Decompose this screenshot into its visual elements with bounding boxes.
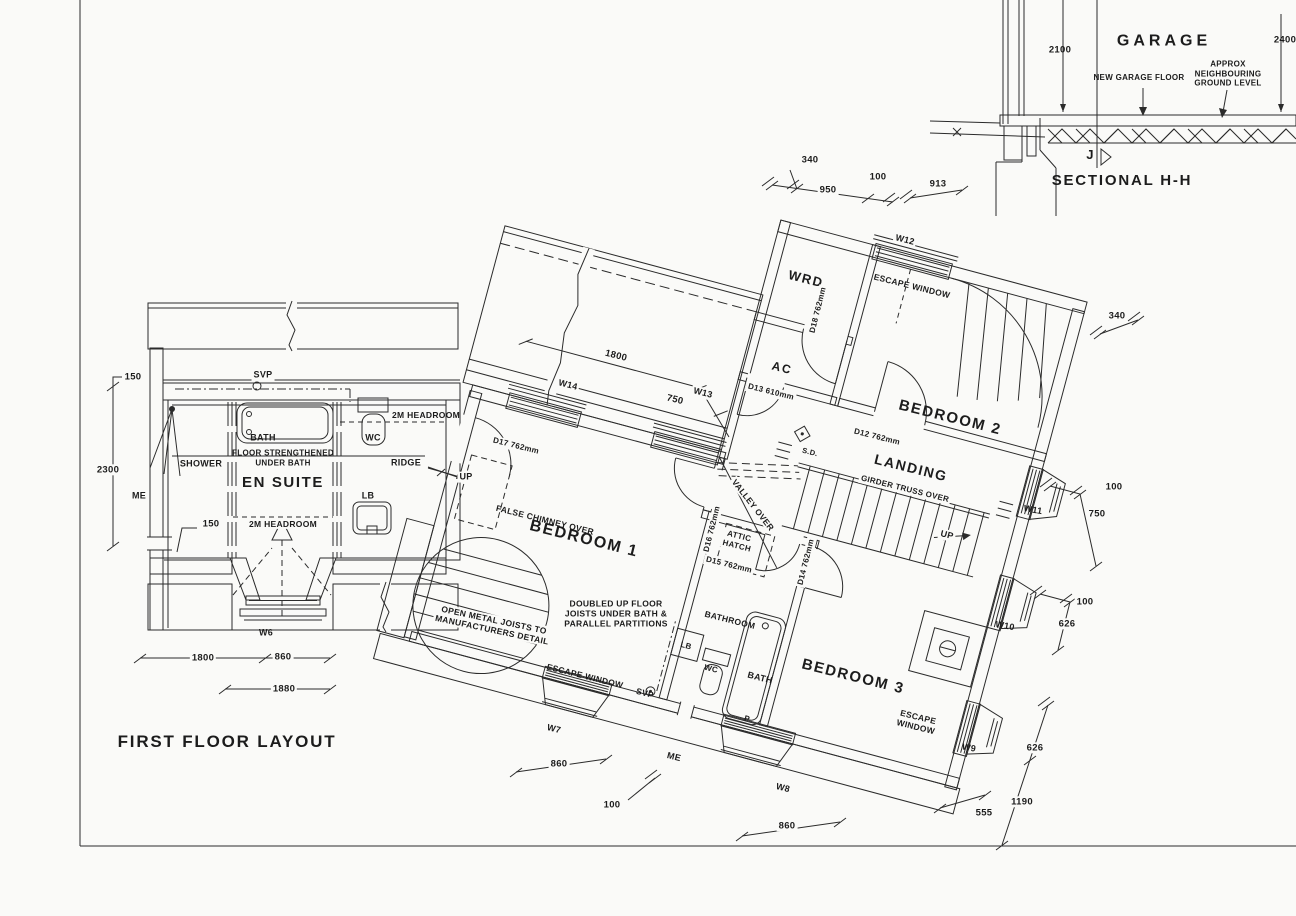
note-new-garage-floor: NEW GARAGE FLOOR xyxy=(1093,73,1184,83)
title-garage: GARAGE xyxy=(1117,31,1211,50)
dim-top-340: 340 xyxy=(800,154,821,165)
dim-left-860: 860 xyxy=(273,651,294,662)
dim-2100: 2100 xyxy=(1049,44,1071,55)
dim-lines-right xyxy=(510,312,1144,850)
dim-bottom-100: 100 xyxy=(602,799,623,810)
fixture-label-shower: SHOWER xyxy=(180,459,222,470)
dim-right-1190: 1190 xyxy=(1009,796,1035,807)
section-marker-j: J xyxy=(1086,147,1094,163)
drawing-sheet: FIRST FLOOR LAYOUT SECTIONAL H-H GARAGE … xyxy=(0,0,1296,916)
window-label-w6: W6 xyxy=(259,628,273,639)
label-me-ensuite: ME xyxy=(130,491,148,502)
dim-top-913: 913 xyxy=(928,178,949,189)
dim-right-626b: 626 xyxy=(1025,742,1046,753)
dim-left-150b: 150 xyxy=(201,518,222,529)
window-label-w9: W9 xyxy=(961,741,977,754)
note-doubled-joists: DOUBLED UP FLOOR JOISTS UNDER BATH & PAR… xyxy=(564,599,667,630)
note-floor-strengthened: FLOOR STRENGTHENED UNDER BATH xyxy=(232,448,334,467)
dim-left-1800: 1800 xyxy=(190,652,216,663)
dim-right-555: 555 xyxy=(974,807,995,818)
dim-left-150a: 150 xyxy=(123,371,144,382)
fixture-label-lb-ensuite: LB xyxy=(362,491,375,502)
dim-left-2300: 2300 xyxy=(95,464,121,475)
title-sectional: SECTIONAL H-H xyxy=(1052,172,1193,190)
dim-top-950: 950 xyxy=(818,184,839,195)
room-label-ensuite: EN SUITE xyxy=(242,474,324,492)
label-up-ensuite: UP xyxy=(457,472,474,483)
fixture-label-wc-ensuite: WC xyxy=(365,433,381,444)
dim-right-100b: 100 xyxy=(1075,596,1096,607)
note-ridge: RIDGE xyxy=(389,458,423,469)
dim-bottom-860b: 860 xyxy=(777,820,798,831)
dim-bottom-860a: 860 xyxy=(549,758,570,769)
fixture-label-bath-ensuite: BATH xyxy=(250,433,276,444)
dim-lines-left xyxy=(107,377,336,694)
fixture-label-svp-ensuite: SVP xyxy=(252,370,275,381)
title-first-floor-layout: FIRST FLOOR LAYOUT xyxy=(118,732,337,752)
main-block-linework xyxy=(370,137,1115,820)
dim-right-750: 750 xyxy=(1087,508,1108,519)
dim-left-1880: 1880 xyxy=(271,683,297,694)
dim-right-340: 340 xyxy=(1107,310,1128,321)
dim-top-100: 100 xyxy=(868,171,889,182)
note-approx-ground-level: APPROX NEIGHBOURING GROUND LEVEL xyxy=(1194,60,1262,89)
dim-right-100a: 100 xyxy=(1104,481,1125,492)
note-headroom-right: 2M HEADROOM xyxy=(392,410,460,420)
note-headroom-bottom: 2M HEADROOM xyxy=(247,519,319,529)
dim-2400: 2400 xyxy=(1274,34,1296,45)
dim-right-626a: 626 xyxy=(1057,618,1078,629)
